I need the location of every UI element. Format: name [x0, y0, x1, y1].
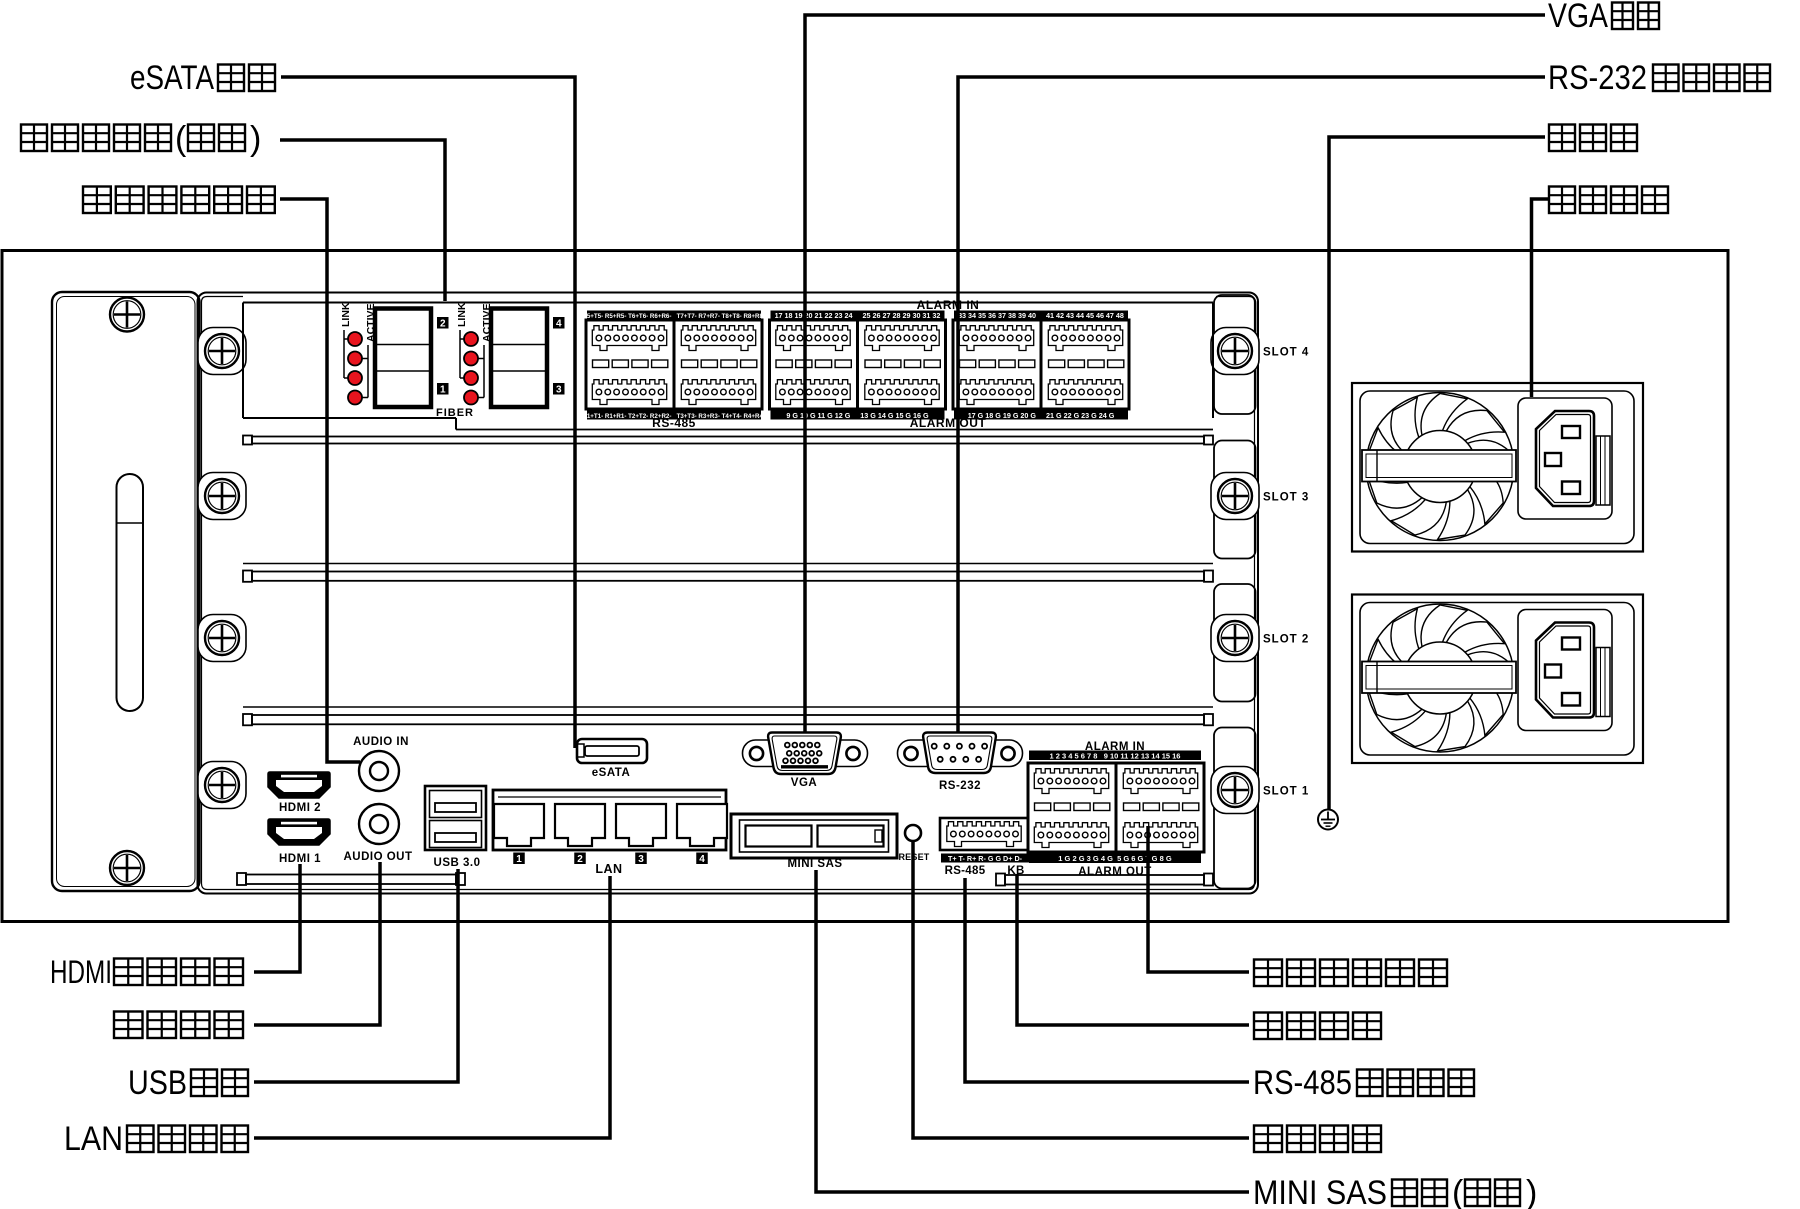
svg-text:SLOT 4: SLOT 4 — [1263, 347, 1309, 359]
svg-text:MINI SAS: MINI SAS — [787, 858, 842, 870]
svg-text:HDMI 1: HDMI 1 — [279, 853, 321, 865]
svg-text:SLOT 1: SLOT 1 — [1263, 786, 1309, 798]
svg-text:1: 1 — [516, 854, 522, 865]
svg-text:RS-232: RS-232 — [939, 780, 981, 792]
svg-text:LINK: LINK — [456, 302, 468, 327]
svg-text:USB: USB — [128, 1064, 187, 1102]
svg-text:): ) — [1526, 1174, 1537, 1209]
svg-text:RS-232: RS-232 — [1548, 59, 1647, 97]
svg-text:(: ( — [175, 120, 187, 158]
svg-text:4: 4 — [699, 854, 705, 865]
svg-text:ALARM OUT: ALARM OUT — [1078, 866, 1152, 878]
svg-text:1 G 2 G 3 G 4 G 5 G 6 G 7 G 8: 1 G 2 G 3 G 4 G 5 G 6 G 7 G 8 G — [1058, 854, 1172, 863]
svg-text:17 G 18 G 19 G 20 G 21 G 2: 17 G 18 G 19 G 20 G 21 G 22 G 23 G 24 G — [968, 411, 1115, 420]
svg-text:HDMI 2: HDMI 2 — [279, 802, 321, 814]
svg-text:T+ T- R+ R- G G D+ D-: T+ T- R+ R- G G D+ D- — [948, 854, 1023, 863]
svg-text:2: 2 — [440, 319, 446, 330]
svg-text:HDMI: HDMI — [50, 954, 112, 990]
svg-text:1 2 3 4 5 6 7 8 9 10 11 12 1: 1 2 3 4 5 6 7 8 9 10 11 12 13 14 15 16 — [1050, 752, 1181, 761]
svg-text:4: 4 — [556, 319, 562, 330]
svg-text:FIBER: FIBER — [436, 407, 474, 419]
svg-text:RS-485: RS-485 — [945, 865, 986, 877]
svg-text:ALARM IN: ALARM IN — [917, 298, 980, 312]
svg-text:): ) — [250, 120, 261, 158]
svg-text:3: 3 — [638, 854, 644, 865]
svg-text:AUDIO IN: AUDIO IN — [353, 736, 409, 748]
svg-text:2: 2 — [577, 854, 583, 865]
svg-text:LAN: LAN — [64, 1120, 123, 1158]
svg-text:(: ( — [1452, 1174, 1464, 1209]
svg-text:RS-485: RS-485 — [1253, 1064, 1352, 1102]
svg-text:SLOT 3: SLOT 3 — [1263, 492, 1309, 504]
svg-text:SLOT 2: SLOT 2 — [1263, 634, 1309, 646]
svg-text:USB 3.0: USB 3.0 — [434, 857, 481, 869]
svg-text:1: 1 — [440, 385, 446, 396]
svg-text:VGA: VGA — [791, 777, 817, 789]
svg-text:9 G 10 G 11 G 12 G 13 G 14: 9 G 10 G 11 G 12 G 13 G 14 G 15 G 16 G — [786, 411, 929, 420]
svg-text:LINK: LINK — [340, 302, 352, 327]
svg-text:AUDIO OUT: AUDIO OUT — [343, 851, 412, 863]
svg-text:eSATA: eSATA — [592, 767, 631, 779]
svg-text:eSATA: eSATA — [130, 59, 214, 97]
svg-text:ALARM OUT: ALARM OUT — [910, 416, 987, 430]
svg-text:VGA: VGA — [1548, 0, 1608, 35]
svg-text:LAN: LAN — [595, 862, 622, 876]
svg-text:RS-485: RS-485 — [652, 416, 696, 430]
svg-text:3: 3 — [556, 385, 562, 396]
svg-text:MINI SAS: MINI SAS — [1253, 1174, 1387, 1209]
